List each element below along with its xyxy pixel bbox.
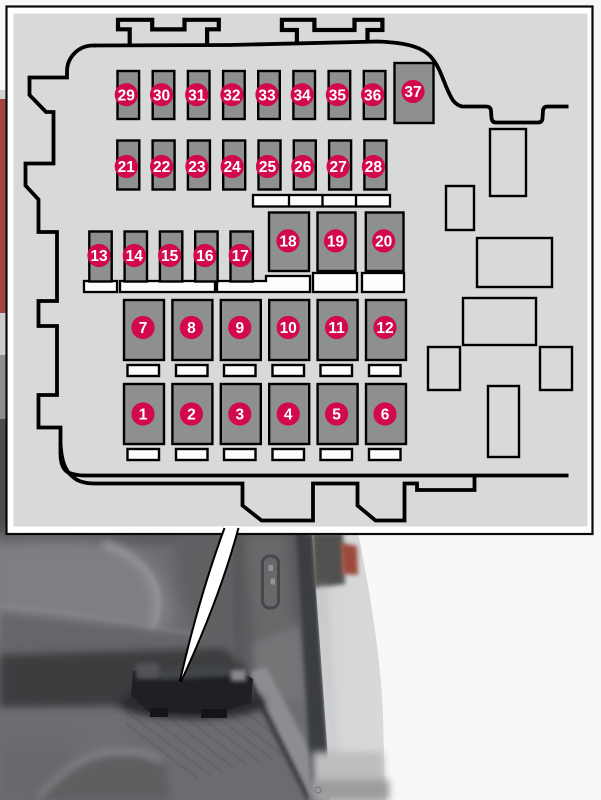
svg-text:29: 29 [118,87,136,104]
svg-text:26: 26 [294,159,312,176]
svg-text:35: 35 [329,87,347,104]
svg-text:36: 36 [364,87,382,104]
svg-text:25: 25 [259,159,277,176]
svg-text:5: 5 [332,407,341,424]
svg-text:13: 13 [90,248,108,265]
svg-text:23: 23 [188,159,206,176]
svg-text:18: 18 [279,234,297,251]
svg-text:7: 7 [139,320,148,337]
svg-text:8: 8 [187,320,196,337]
svg-text:19: 19 [327,234,345,251]
svg-text:6: 6 [381,407,390,424]
svg-text:3: 3 [235,407,244,424]
svg-text:28: 28 [365,159,383,176]
svg-text:9: 9 [235,320,244,337]
svg-text:12: 12 [376,320,393,337]
svg-text:1: 1 [139,407,148,424]
svg-text:15: 15 [161,248,179,265]
svg-text:21: 21 [118,159,136,176]
svg-text:14: 14 [126,248,144,265]
svg-text:27: 27 [329,159,346,176]
svg-text:37: 37 [404,84,421,101]
svg-text:24: 24 [224,159,242,176]
svg-text:4: 4 [284,407,293,424]
svg-text:11: 11 [328,320,345,337]
svg-text:2: 2 [187,407,196,424]
svg-text:10: 10 [280,320,297,337]
svg-text:31: 31 [188,87,206,104]
svg-text:33: 33 [258,87,276,104]
svg-text:30: 30 [153,87,170,104]
svg-text:16: 16 [196,248,214,265]
svg-text:22: 22 [153,159,170,176]
svg-text:34: 34 [294,87,312,104]
svg-text:32: 32 [223,87,240,104]
svg-text:20: 20 [375,234,392,251]
svg-text:17: 17 [232,248,249,265]
